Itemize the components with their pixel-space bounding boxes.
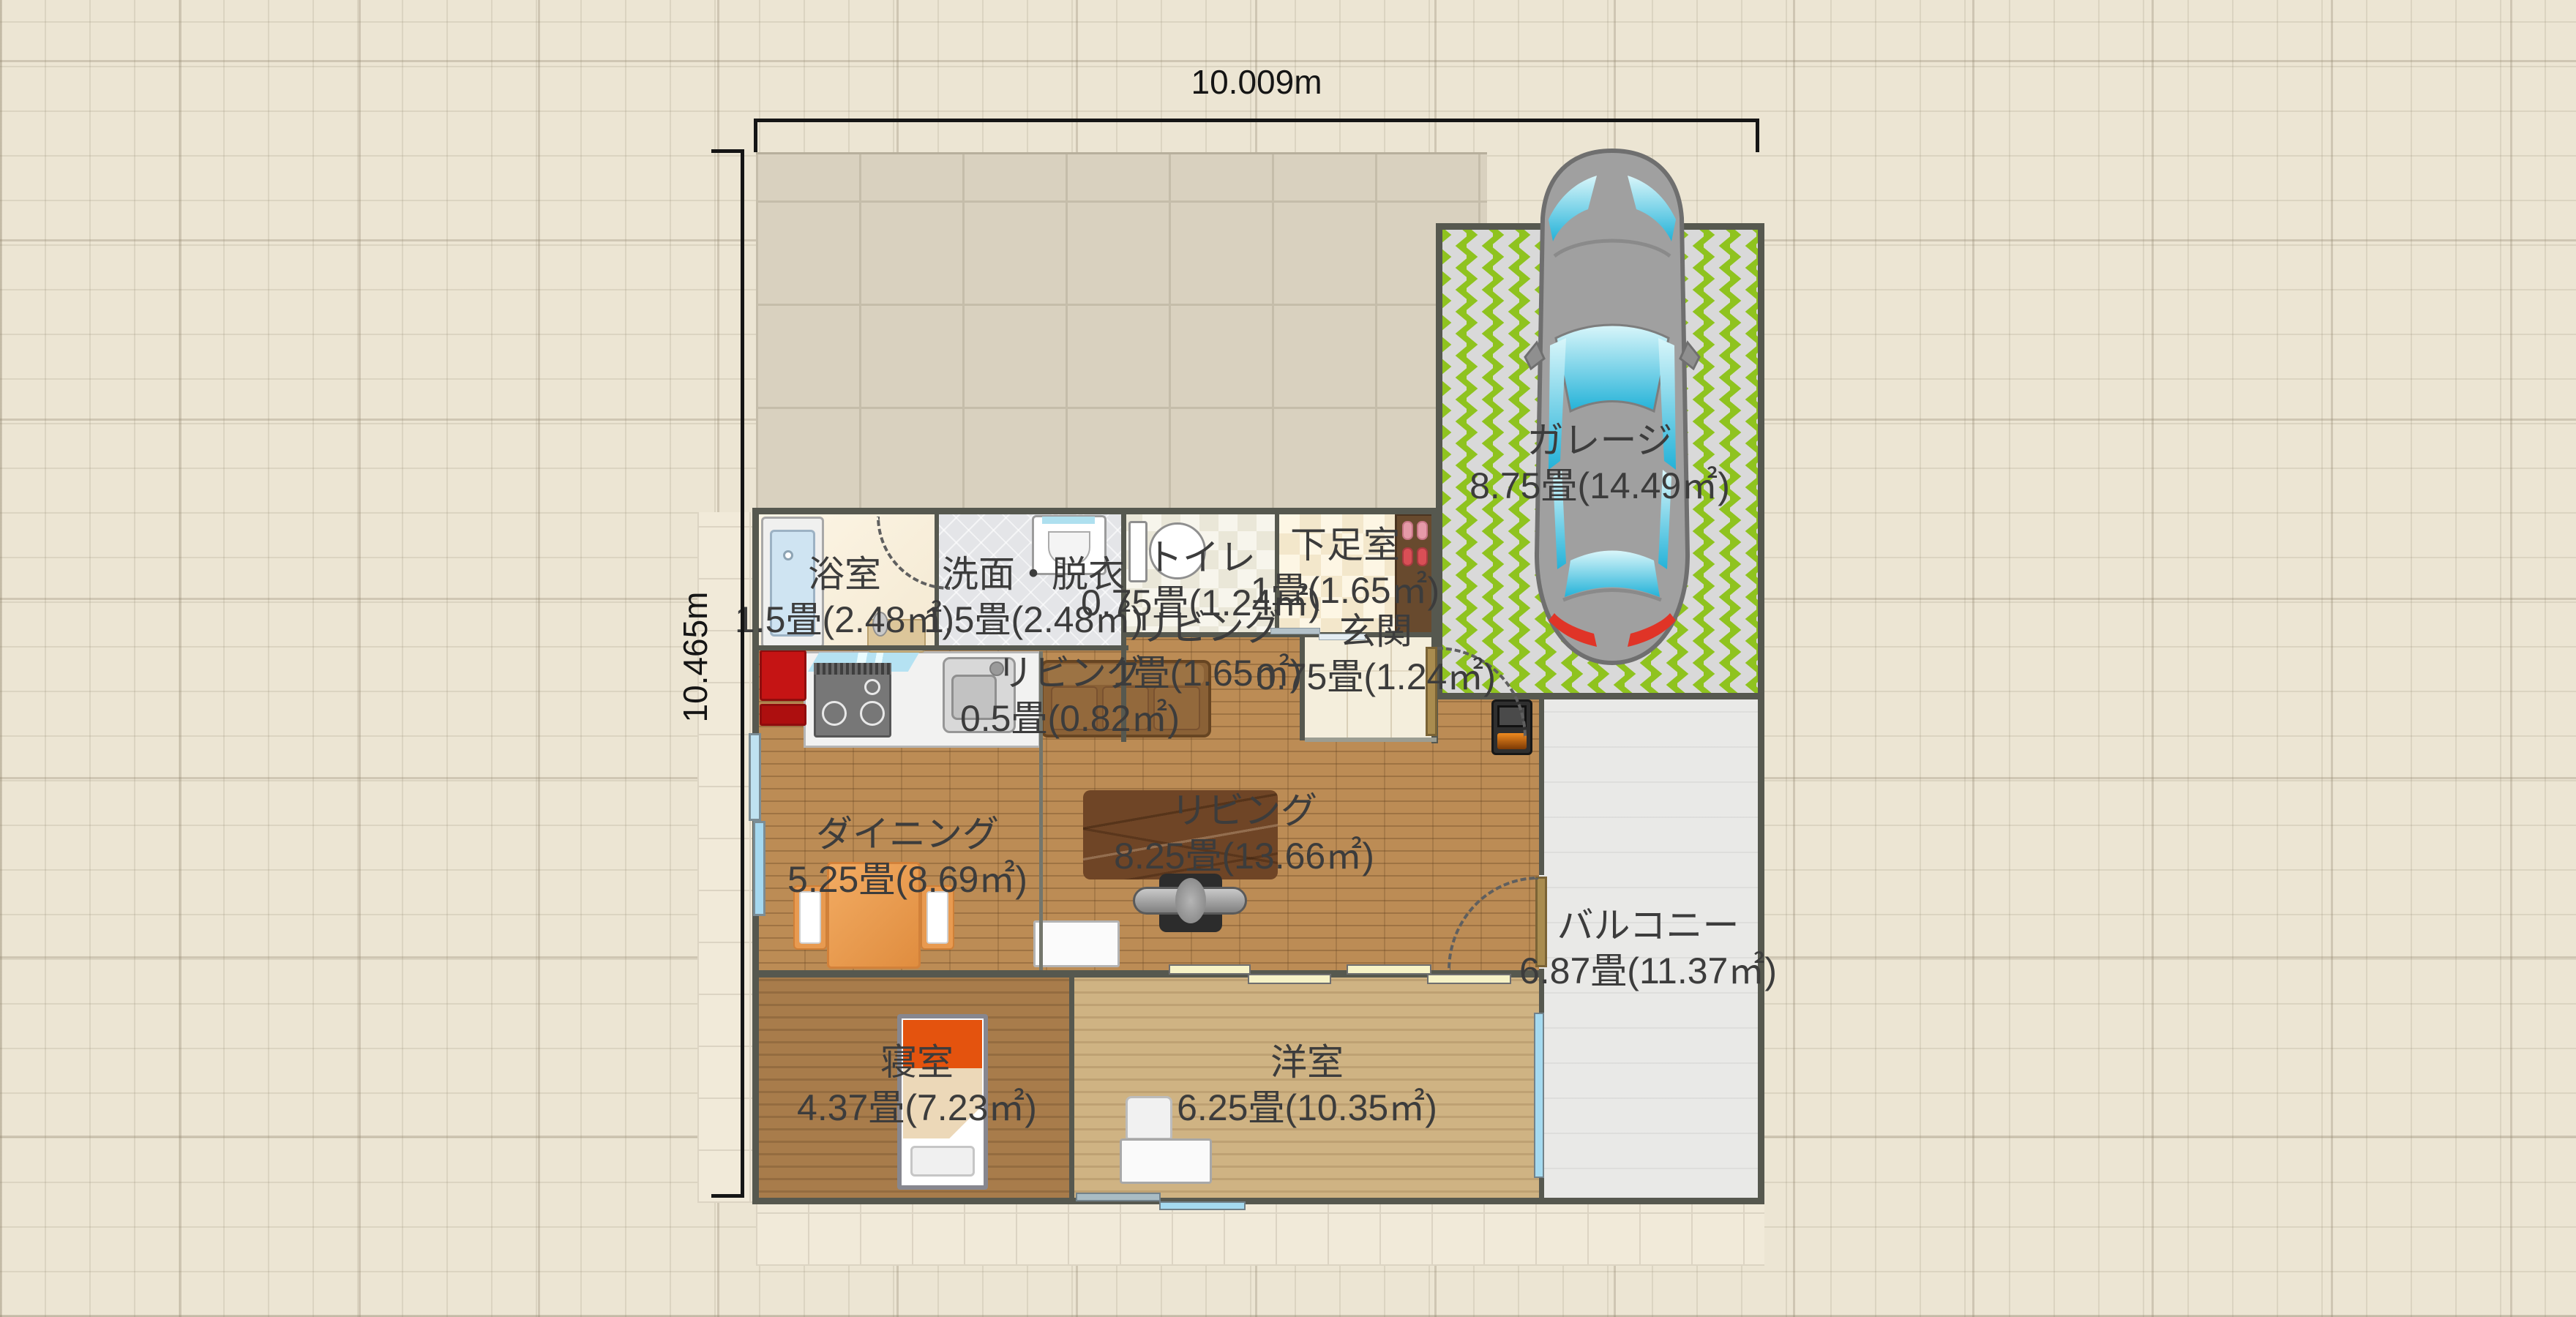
window-living-south[interactable] [1347,964,1431,975]
wall [1121,512,1126,742]
slipper-icon [1402,547,1413,566]
dimension-line-vertical [741,149,744,1198]
dimension-tick [754,119,757,152]
entrance-door-icon[interactable] [1426,647,1437,736]
car-icon[interactable] [1524,146,1701,672]
dimension-height-label: 10.465m [675,591,715,722]
shoe-cabinet-icon[interactable] [1395,514,1436,635]
rug-icon[interactable] [1083,790,1278,879]
balcony-wall [1758,693,1764,1203]
floorplan-canvas[interactable]: 浴室1.5畳(2.48㎡) 洗面・脱衣1.5畳(2.48㎡) トイレ0.75畳(… [0,0,2576,1317]
slipper-icon [1402,521,1413,540]
burner-icon [822,701,847,726]
dimension-tick [711,149,744,153]
washbasin-top [1042,517,1095,524]
burner-icon [864,679,880,695]
bed-pillow-area [903,1020,982,1068]
slipper-icon [1417,547,1428,566]
sideboard-icon[interactable] [1033,920,1120,967]
sliding-door-hall[interactable] [1270,628,1320,634]
slipper-icon [1417,521,1428,540]
window-dining-west[interactable] [753,821,765,916]
wall [1039,651,1043,975]
wall [752,508,1441,514]
toilet-tank [1128,521,1147,582]
desk-chair-icon[interactable] [1126,1096,1172,1140]
bed-foot [910,1146,975,1177]
sink-basin [951,675,997,720]
room-balcony-floor[interactable] [1539,693,1758,1203]
bed-blanket [903,1068,982,1138]
chair-seat [926,891,948,944]
sofa-cushion [1051,686,1098,730]
refrigerator-lower [760,704,806,726]
toilet-icon[interactable] [1149,522,1206,579]
sink-faucet [989,661,1004,676]
window-living-south[interactable] [1169,964,1251,975]
dimension-line-horizontal [754,119,1759,122]
garage-wall [1436,223,1442,699]
wall [752,1198,1764,1204]
stove-control-strip [814,663,891,675]
window-dining-west[interactable] [749,733,761,821]
chair-seat [799,891,821,944]
window-living-south[interactable] [1248,974,1331,984]
wall [1069,978,1074,1201]
bathtub-drain [783,550,793,560]
dimension-tick [1756,119,1759,152]
room-entrance-floor[interactable] [1303,637,1436,739]
sliding-door-hall[interactable] [1319,634,1366,640]
burner-icon [860,701,885,726]
entrance-step-edge [1305,738,1437,742]
sofa-cushion [1153,686,1200,730]
garage-wall [1758,223,1764,699]
tv-speaker [1175,878,1206,923]
dining-table-icon[interactable] [827,862,921,969]
window-western-south[interactable] [1076,1193,1161,1201]
dimension-width-label: 10.009m [1191,62,1322,102]
desk-icon[interactable] [1120,1138,1212,1184]
window-western-south[interactable] [1159,1201,1246,1210]
bath-faucet-icon [872,612,888,637]
dimension-tick [711,1194,744,1198]
bottom-apron-tiles [756,1203,1764,1266]
bathtub-basin [770,530,815,637]
wall [1275,512,1279,635]
window-western-east[interactable] [1534,1013,1544,1178]
window-living-south[interactable] [1427,974,1511,984]
wall [1300,637,1305,740]
wall [752,645,1128,650]
refrigerator-icon[interactable] [760,650,806,701]
washbasin-bowl [1048,531,1090,565]
yard-tiles [756,152,1487,512]
